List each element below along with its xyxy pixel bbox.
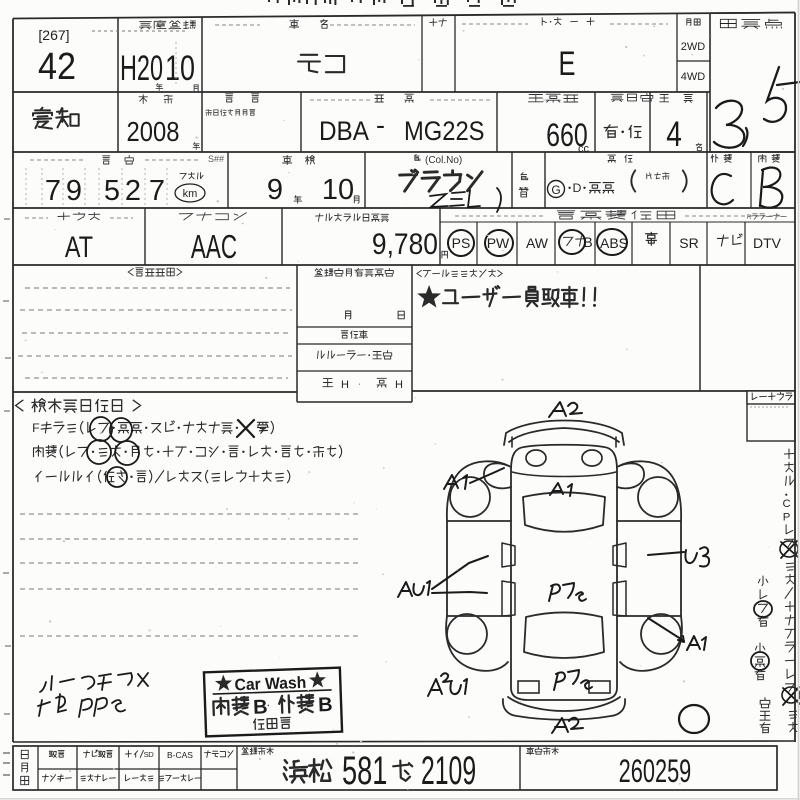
svg-text:[267]: [267] [38, 27, 69, 43]
svg-text:7: 7 [149, 175, 165, 207]
svg-text:AT: AT [65, 230, 93, 263]
svg-text:2: 2 [125, 175, 141, 207]
svg-text:2WD: 2WD [681, 41, 706, 53]
svg-text:2008: 2008 [127, 115, 180, 147]
svg-text:-: - [376, 110, 385, 140]
svg-text:B-CAS: B-CAS [167, 750, 193, 760]
svg-text:PS: PS [452, 235, 471, 251]
svg-text:42: 42 [38, 44, 76, 87]
svg-text:R: R [747, 214, 752, 221]
svg-text:7: 7 [45, 175, 61, 207]
svg-text:D: D [573, 181, 582, 195]
svg-text:D: D [148, 750, 154, 759]
svg-text:C: C [782, 498, 790, 510]
svg-text:4: 4 [666, 114, 682, 154]
svg-text:10: 10 [322, 174, 354, 206]
svg-text:AW: AW [526, 235, 549, 251]
svg-text:DBA: DBA [319, 117, 370, 146]
svg-text:SR: SR [679, 235, 698, 251]
svg-text:10: 10 [165, 49, 195, 88]
svg-text:km: km [183, 188, 198, 200]
svg-text:9,780: 9,780 [372, 226, 438, 260]
svg-text:ABS: ABS [600, 235, 628, 251]
svg-text:B: B [318, 694, 333, 716]
svg-text:DTV: DTV [753, 235, 782, 251]
svg-text:4WD: 4WD [681, 71, 706, 83]
svg-text:MG22S: MG22S [404, 117, 485, 147]
svg-text:F: F [32, 421, 40, 435]
svg-text:(Col.No): (Col.No) [425, 155, 462, 166]
svg-text:581: 581 [342, 749, 387, 793]
svg-text:H20: H20 [120, 49, 163, 88]
svg-text:2109: 2109 [421, 749, 476, 793]
svg-text:H: H [341, 379, 349, 391]
svg-text:9: 9 [66, 175, 82, 207]
svg-text:S##: S## [208, 154, 224, 164]
svg-text:PW: PW [487, 235, 510, 251]
svg-text:H: H [395, 379, 403, 391]
svg-text:E: E [558, 46, 575, 83]
svg-text:B: B [253, 696, 268, 718]
svg-text:9: 9 [267, 174, 283, 206]
svg-text:5: 5 [104, 175, 120, 207]
svg-text:G: G [551, 183, 560, 197]
svg-text:P: P [783, 511, 791, 523]
svg-text:AAC: AAC [191, 228, 237, 265]
svg-text:cc: cc [578, 143, 590, 155]
